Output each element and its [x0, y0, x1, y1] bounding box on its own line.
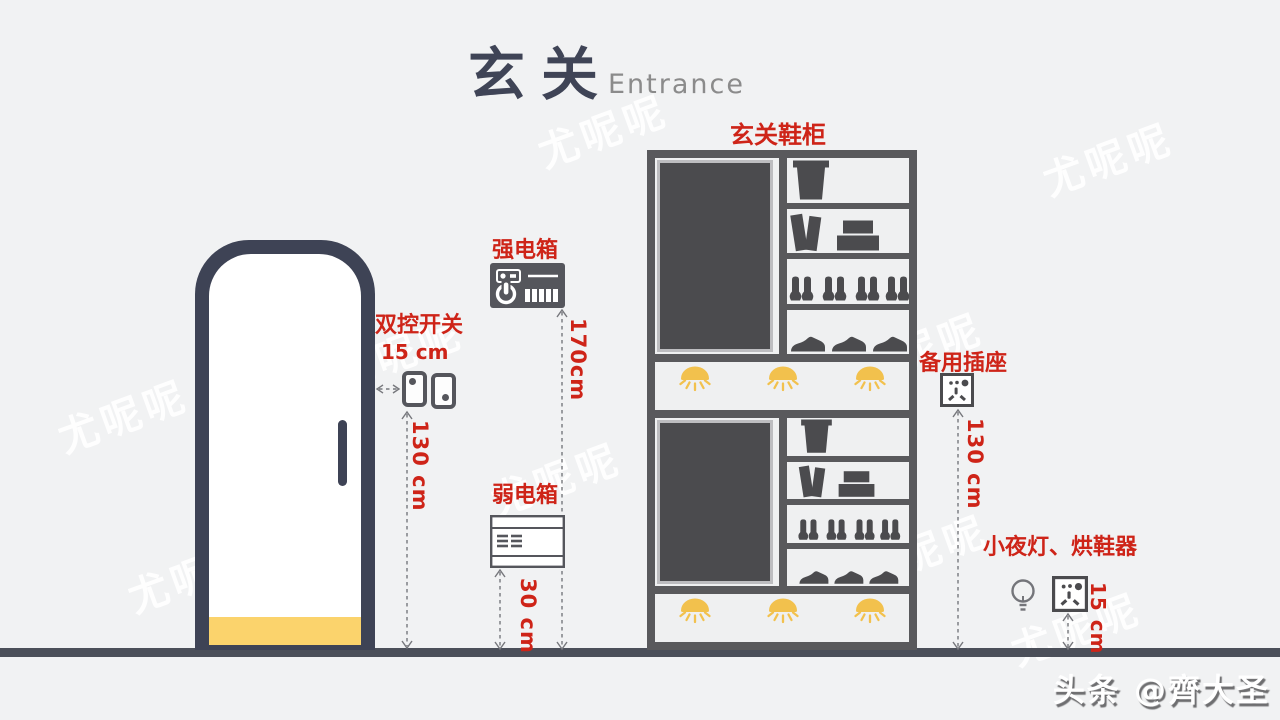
- vase-icon: [787, 157, 909, 202]
- door-leaf: [209, 254, 361, 645]
- watermark: 尤呢呢: [49, 364, 196, 465]
- switch-height-label: 130 cm: [408, 420, 432, 511]
- cabinet-light-shelf: [655, 362, 909, 410]
- downlight-icon: [765, 365, 801, 392]
- page-title: 玄关 Entrance: [468, 44, 745, 107]
- cabinet-upper-unit: [655, 158, 909, 354]
- weak-box-label: 弱电箱: [492, 477, 558, 509]
- light-bulb-icon: [1006, 576, 1040, 618]
- books-boxes-icon: [787, 208, 909, 253]
- switch-toggle-dot: [442, 394, 449, 401]
- weak-electric-box-icon: [490, 515, 565, 568]
- dimension-arrow-horizontal: [375, 382, 401, 396]
- entrance-infographic: 尤呢呢 尤呢呢 尤呢呢 尤呢呢 尤呢呢 尤呢呢 尤呢呢 尤呢呢 尤呢呢 玄关 E…: [0, 0, 1280, 720]
- dimension-arrow-vertical: [1061, 613, 1075, 651]
- shelf-shoes-upright: [787, 259, 909, 304]
- books-boxes-icon: [787, 461, 909, 499]
- switch-distance-label: 15 cm: [381, 340, 449, 364]
- title-english: Entrance: [608, 69, 745, 100]
- shoe-cabinet: [647, 150, 917, 650]
- door-kick-plate: [209, 617, 361, 645]
- weak-box-height-label: 30 cm: [516, 578, 540, 654]
- shelf-vase: [787, 418, 909, 456]
- strong-box-height-label: 170cm: [566, 318, 590, 401]
- downlight-icon: [677, 365, 713, 392]
- night-light-height-label: 15 cm: [1086, 582, 1110, 655]
- shelf-books-boxes: [787, 209, 909, 254]
- dimension-arrow-vertical: [493, 568, 507, 651]
- cabinet-label: 玄关鞋柜: [730, 115, 826, 150]
- night-light-label: 小夜灯、烘鞋器: [983, 529, 1137, 561]
- downlight-icon: [765, 597, 801, 624]
- strong-electric-box-icon: [490, 263, 565, 308]
- cabinet-divider: [779, 418, 787, 586]
- shelf-shoes-upright: [787, 505, 909, 543]
- cabinet-divider: [779, 158, 787, 354]
- entry-door: [195, 240, 375, 650]
- side-shoes-icon: [787, 548, 909, 586]
- upright-shoes-icon: [787, 504, 909, 542]
- cabinet-shelves: [787, 418, 909, 586]
- watermark: 尤呢呢: [1034, 107, 1181, 208]
- shelf-vase: [787, 158, 909, 203]
- light-switch-icon: [402, 371, 427, 407]
- cabinet-door-panel: [657, 420, 773, 584]
- cabinet-shelves: [787, 158, 909, 354]
- shelf-books-boxes: [787, 462, 909, 500]
- light-switch-icon: [431, 373, 456, 409]
- power-socket-icon: [940, 373, 974, 407]
- shelf-shoes-side: [787, 549, 909, 587]
- strong-box-label: 强电箱: [492, 232, 558, 264]
- shelf-shoes-side: [787, 310, 909, 355]
- title-chinese: 玄关: [468, 44, 614, 107]
- power-socket-icon: [1052, 576, 1088, 612]
- side-shoes-icon: [787, 309, 909, 354]
- downlight-icon: [677, 597, 713, 624]
- cabinet-lower-unit: [655, 418, 909, 586]
- switch-label: 双控开关: [375, 307, 463, 339]
- credit-watermark: 头条 @齊大圣: [1053, 665, 1270, 711]
- downlight-icon: [852, 365, 888, 392]
- upright-shoes-icon: [787, 258, 909, 303]
- cabinet-door-panel: [657, 160, 773, 352]
- door-handle: [338, 420, 347, 486]
- downlight-icon: [852, 597, 888, 624]
- switch-toggle-dot: [409, 378, 416, 385]
- spare-socket-height-label: 130 cm: [963, 418, 987, 509]
- vase-icon: [787, 417, 909, 455]
- cabinet-light-base: [655, 594, 909, 642]
